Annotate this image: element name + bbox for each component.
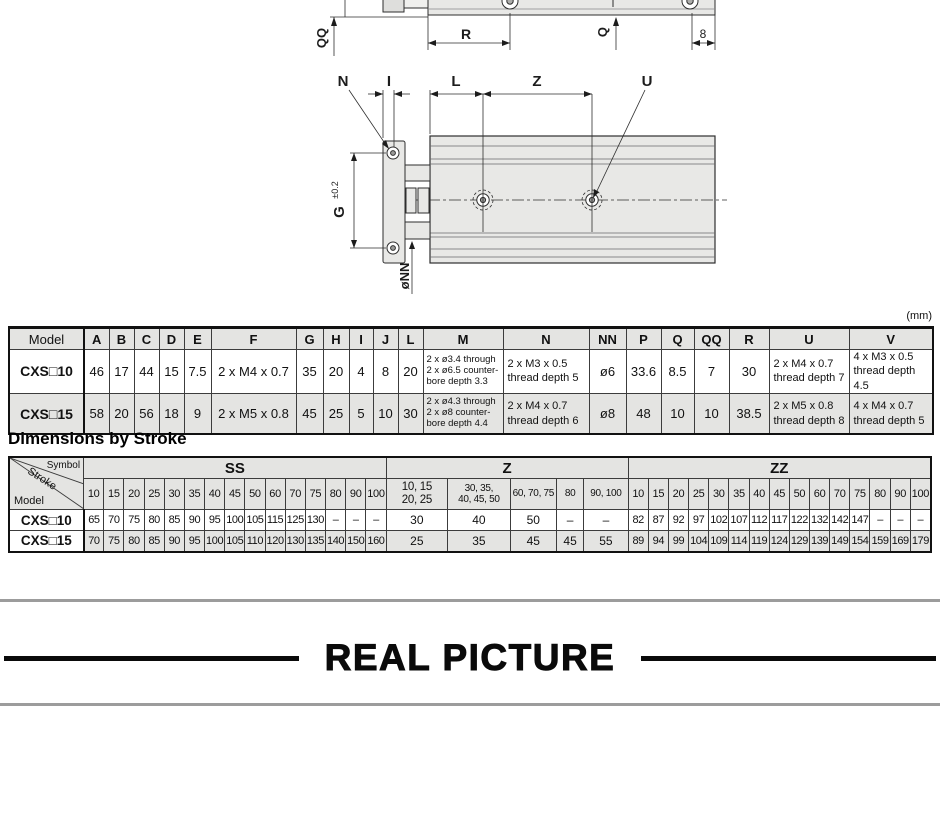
dim-cell: 8 <box>373 350 398 394</box>
dim-cell: 17 <box>109 350 134 394</box>
stroke-cell: 95 <box>205 510 225 531</box>
stroke-cell: 130 <box>305 510 325 531</box>
dim-cell: 33.6 <box>626 350 661 394</box>
heading-dash-right <box>641 656 936 661</box>
dim-cell: 45 <box>296 393 323 434</box>
dim-cell: 20 <box>323 350 349 394</box>
model-cell: CXS□15 <box>9 531 84 552</box>
col-header: A <box>84 328 109 350</box>
stroke-header: 40 <box>749 479 769 510</box>
stroke-header: 100 <box>366 479 386 510</box>
stroke-cell: 87 <box>648 510 668 531</box>
stroke-cell: 50 <box>510 510 556 531</box>
stroke-cell: 55 <box>584 531 628 552</box>
dim-label-qq: QQ <box>314 28 329 48</box>
stroke-cell: 104 <box>689 531 709 552</box>
stroke-header: 15 <box>104 479 124 510</box>
stroke-cell: 139 <box>810 531 830 552</box>
dim-cell: 46 <box>84 350 109 394</box>
stroke-cell: 45 <box>557 531 584 552</box>
dim-cell: 44 <box>134 350 159 394</box>
stroke-header: 60 <box>810 479 830 510</box>
stroke-header: 20 <box>124 479 144 510</box>
dim-cell: 7 <box>694 350 729 394</box>
stroke-cell: 115 <box>265 510 285 531</box>
stroke-cell: 90 <box>164 531 184 552</box>
stroke-cell: 117 <box>769 510 789 531</box>
stroke-cell: 122 <box>789 510 809 531</box>
stroke-header: 60 <box>265 479 285 510</box>
stroke-cell: 124 <box>769 531 789 552</box>
stroke-cell: 160 <box>366 531 386 552</box>
dim-label-g: G <box>331 206 348 218</box>
stroke-cell: 100 <box>205 531 225 552</box>
stroke-cell: 40 <box>448 510 511 531</box>
dim-cell: 10 <box>661 393 694 434</box>
dim-label-l: L <box>451 73 460 90</box>
col-header: G <box>296 328 323 350</box>
dim-label-8: 8 <box>700 27 707 41</box>
stroke-header: 70 <box>285 479 305 510</box>
col-header: Q <box>661 328 694 350</box>
stroke-header: 25 <box>144 479 164 510</box>
model-cell: CXS□10 <box>9 350 84 394</box>
stroke-header: 30 <box>709 479 729 510</box>
stroke-header: 10, 15 20, 25 <box>386 479 448 510</box>
stroke-cell: 129 <box>789 531 809 552</box>
table-row-cxs10: CXS□10 46 17 44 15 7.5 2 x M4 x 0.7 35 2… <box>9 350 933 394</box>
stroke-cell: 169 <box>890 531 910 552</box>
dim-cell: 4 x M3 x 0.5 thread depth 4.5 <box>849 350 933 394</box>
stroke-cell: 132 <box>810 510 830 531</box>
group-header-ss: SS <box>84 457 387 479</box>
stroke-cell: 70 <box>84 531 104 552</box>
stroke-header: 80 <box>870 479 890 510</box>
stroke-cell: 119 <box>749 531 769 552</box>
stroke-cell: 110 <box>245 531 265 552</box>
col-header: D <box>159 328 184 350</box>
dimension-table-header: Model A B C D E F G H I J L M N NN P Q Q… <box>9 328 933 350</box>
dim-label-g-tolerance: ±0.2 <box>330 181 340 198</box>
stroke-header: 45 <box>225 479 245 510</box>
stroke-cell: 147 <box>850 510 870 531</box>
dim-cell: 10 <box>373 393 398 434</box>
stroke-values-header: 1015202530354045506070758090100 10, 15 2… <box>9 479 931 510</box>
dim-label-r: R <box>461 26 471 42</box>
dim-cell: 2 x M5 x 0.8 thread depth 8 <box>769 393 849 434</box>
dim-cell: 2 x M4 x 0.7 <box>211 350 296 394</box>
stroke-cell: 82 <box>628 510 648 531</box>
dim-cell: 35 <box>296 350 323 394</box>
heading-dash-left <box>4 656 299 661</box>
dim-label-z: Z <box>532 73 541 90</box>
group-header-zz: ZZ <box>628 457 931 479</box>
dim-cell: 2 x ø3.4 through 2 x ø6.5 counter- bore … <box>423 350 503 394</box>
col-header: L <box>398 328 423 350</box>
separator-line-bottom <box>0 703 940 706</box>
stroke-cell: 95 <box>184 531 204 552</box>
stroke-cell: 80 <box>144 510 164 531</box>
stroke-cell: 179 <box>910 531 931 552</box>
corner-label-model: Model <box>14 495 44 507</box>
stroke-cell: 142 <box>830 510 850 531</box>
dim-cell: 2 x M4 x 0.7 thread depth 6 <box>503 393 589 434</box>
stroke-cell: 154 <box>850 531 870 552</box>
col-header: NN <box>589 328 626 350</box>
col-header: H <box>323 328 349 350</box>
stroke-cell: 109 <box>709 531 729 552</box>
stroke-cell: 105 <box>245 510 265 531</box>
stroke-header: 80 <box>557 479 584 510</box>
technical-drawing: QQ R Q 8 <box>0 0 940 312</box>
stroke-cell: 70 <box>104 510 124 531</box>
col-header: I <box>349 328 373 350</box>
stroke-cell: 25 <box>386 531 448 552</box>
stroke-header: 50 <box>245 479 265 510</box>
stroke-cell: 114 <box>729 531 749 552</box>
stroke-cell: 97 <box>689 510 709 531</box>
dim-cell: 2 x M4 x 0.7 thread depth 7 <box>769 350 849 394</box>
stroke-cell: – <box>346 510 366 531</box>
dim-cell: ø6 <box>589 350 626 394</box>
stroke-header: 15 <box>648 479 668 510</box>
stroke-cell: 159 <box>870 531 890 552</box>
stroke-cell: 107 <box>729 510 749 531</box>
stroke-cell: 35 <box>448 531 511 552</box>
col-header: V <box>849 328 933 350</box>
stroke-cell: – <box>870 510 890 531</box>
stroke-cell: – <box>557 510 584 531</box>
dim-cell: 9 <box>184 393 211 434</box>
corner-label-symbol: Symbol <box>47 460 80 471</box>
stroke-header: 45 <box>769 479 789 510</box>
top-view: QQ R Q 8 <box>314 0 715 56</box>
stroke-cell: 130 <box>285 531 305 552</box>
dimension-table: Model A B C D E F G H I J L M N NN P Q Q… <box>8 326 934 435</box>
side-view: N I L Z U G ±0.2 øNN <box>330 73 727 294</box>
col-header: C <box>134 328 159 350</box>
stroke-cell: 65 <box>84 510 104 531</box>
dim-cell: 7.5 <box>184 350 211 394</box>
stroke-header: 35 <box>729 479 749 510</box>
stroke-header: 35 <box>184 479 204 510</box>
dim-cell: 25 <box>323 393 349 434</box>
stroke-header: 60, 70, 75 <box>510 479 556 510</box>
unit-label: (mm) <box>906 310 932 322</box>
dim-cell: ø8 <box>589 393 626 434</box>
stroke-header: 90, 100 <box>584 479 628 510</box>
col-header: QQ <box>694 328 729 350</box>
dim-cell: 5 <box>349 393 373 434</box>
stroke-cell: – <box>584 510 628 531</box>
stroke-cell: 140 <box>325 531 345 552</box>
stroke-header: 50 <box>789 479 809 510</box>
col-header: U <box>769 328 849 350</box>
corner-header-cell: Symbol Stroke Model <box>9 457 84 510</box>
stroke-cell: 100 <box>225 510 245 531</box>
dim-label-i: I <box>387 73 391 90</box>
stroke-cell: 75 <box>104 531 124 552</box>
stroke-cell: – <box>325 510 345 531</box>
datasheet-page: QQ R Q 8 <box>0 0 940 820</box>
real-picture-heading: REAL PICTURE <box>0 634 940 682</box>
stroke-header: 90 <box>346 479 366 510</box>
model-cell: CXS□10 <box>9 510 84 531</box>
stroke-cell: – <box>366 510 386 531</box>
stroke-cell: 94 <box>648 531 668 552</box>
stroke-cell: 125 <box>285 510 305 531</box>
stroke-header: 75 <box>305 479 325 510</box>
stroke-header: 90 <box>890 479 910 510</box>
stroke-cell: 135 <box>305 531 325 552</box>
dim-label-u: U <box>642 73 653 90</box>
col-header: E <box>184 328 211 350</box>
stroke-header: 30, 35, 40, 45, 50 <box>448 479 511 510</box>
dim-cell: 2 x ø4.3 through 2 x ø8 counter- bore de… <box>423 393 503 434</box>
col-header: R <box>729 328 769 350</box>
stroke-cell: 75 <box>124 510 144 531</box>
stroke-cell: 92 <box>668 510 688 531</box>
stroke-header: 75 <box>850 479 870 510</box>
dim-cell: 15 <box>159 350 184 394</box>
real-picture-title: REAL PICTURE <box>325 637 616 679</box>
col-header: M <box>423 328 503 350</box>
stroke-cell: 85 <box>144 531 164 552</box>
stroke-row-cxs10: CXS□10 65707580859095100105115125130––– … <box>9 510 931 531</box>
stroke-cell: – <box>890 510 910 531</box>
dim-label-n: N <box>338 73 349 90</box>
stroke-header: 25 <box>689 479 709 510</box>
col-header: B <box>109 328 134 350</box>
dim-cell: 2 x M3 x 0.5 thread depth 5 <box>503 350 589 394</box>
stroke-cell: 85 <box>164 510 184 531</box>
dim-cell: 30 <box>398 393 423 434</box>
separator-line-top <box>0 599 940 602</box>
stroke-header: 80 <box>325 479 345 510</box>
stroke-header: 10 <box>84 479 104 510</box>
col-header: N <box>503 328 589 350</box>
dim-cell: 30 <box>729 350 769 394</box>
stroke-header: 70 <box>830 479 850 510</box>
dim-cell: 2 x M5 x 0.8 <box>211 393 296 434</box>
stroke-cell: 150 <box>346 531 366 552</box>
stroke-cell: 99 <box>668 531 688 552</box>
stroke-header: 100 <box>910 479 931 510</box>
col-header: P <box>626 328 661 350</box>
stroke-cell: 30 <box>386 510 448 531</box>
stroke-header: 10 <box>628 479 648 510</box>
col-header-model: Model <box>9 328 84 350</box>
stroke-cell: 149 <box>830 531 850 552</box>
stroke-header: 20 <box>668 479 688 510</box>
dim-label-q: Q <box>595 27 610 37</box>
dim-cell: 48 <box>626 393 661 434</box>
dim-cell: 10 <box>694 393 729 434</box>
dim-cell: 20 <box>398 350 423 394</box>
stroke-cell: 89 <box>628 531 648 552</box>
stroke-table-group-header: Symbol Stroke Model SS Z ZZ <box>9 457 931 479</box>
stroke-cell: 90 <box>184 510 204 531</box>
stroke-cell: 105 <box>225 531 245 552</box>
dim-cell: 38.5 <box>729 393 769 434</box>
stroke-row-cxs15: CXS□15 707580859095100105110120130135140… <box>9 531 931 552</box>
dim-label-nn: øNN <box>397 263 412 290</box>
dim-cell: 4 <box>349 350 373 394</box>
stroke-header: 30 <box>164 479 184 510</box>
stroke-cell: 112 <box>749 510 769 531</box>
dim-cell: 8.5 <box>661 350 694 394</box>
stroke-header: 40 <box>205 479 225 510</box>
group-header-z: Z <box>386 457 628 479</box>
col-header: F <box>211 328 296 350</box>
stroke-cell: 102 <box>709 510 729 531</box>
col-header: J <box>373 328 398 350</box>
dim-cell: 4 x M4 x 0.7 thread depth 5 <box>849 393 933 434</box>
stroke-cell: – <box>910 510 931 531</box>
stroke-section-title: Dimensions by Stroke <box>8 429 187 449</box>
stroke-cell: 45 <box>510 531 556 552</box>
stroke-table: Symbol Stroke Model SS Z ZZ 101520253035… <box>8 456 932 553</box>
stroke-cell: 80 <box>124 531 144 552</box>
stroke-cell: 120 <box>265 531 285 552</box>
